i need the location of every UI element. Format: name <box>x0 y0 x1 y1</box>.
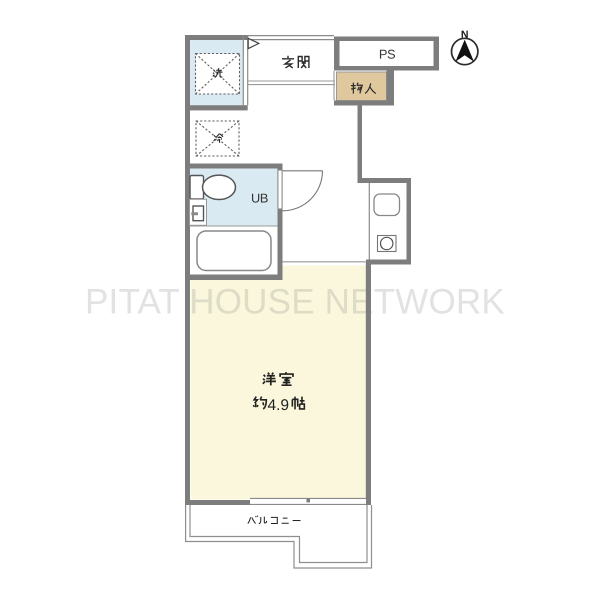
svg-text:PITAT HOUSE NETWORK: PITAT HOUSE NETWORK <box>85 283 505 322</box>
